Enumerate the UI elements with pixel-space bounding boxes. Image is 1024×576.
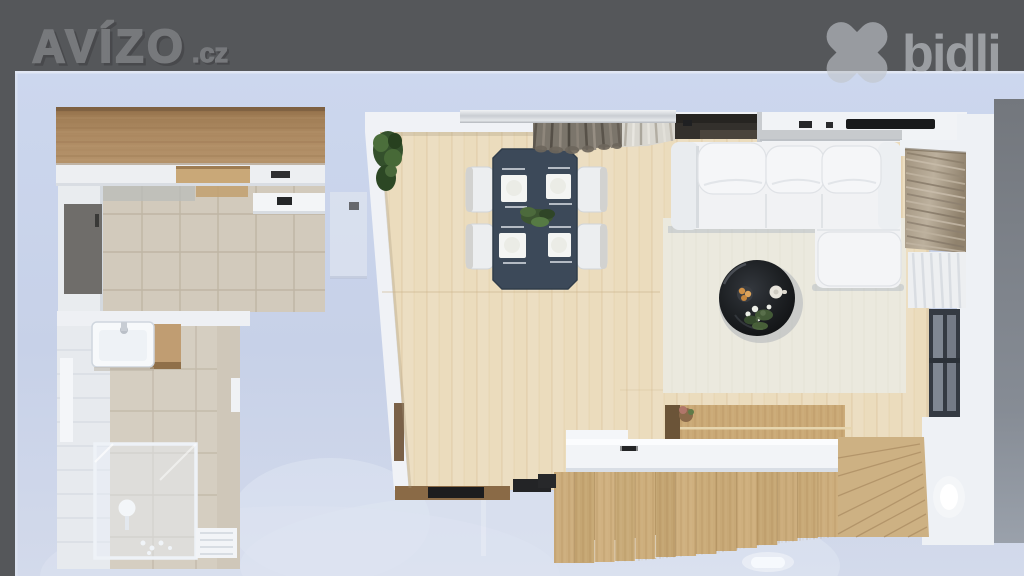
svg-text:AVÍZO: AVÍZO bbox=[32, 20, 186, 72]
svg-text:bidli: bidli bbox=[902, 25, 1000, 83]
svg-text:.cz: .cz bbox=[192, 38, 228, 68]
